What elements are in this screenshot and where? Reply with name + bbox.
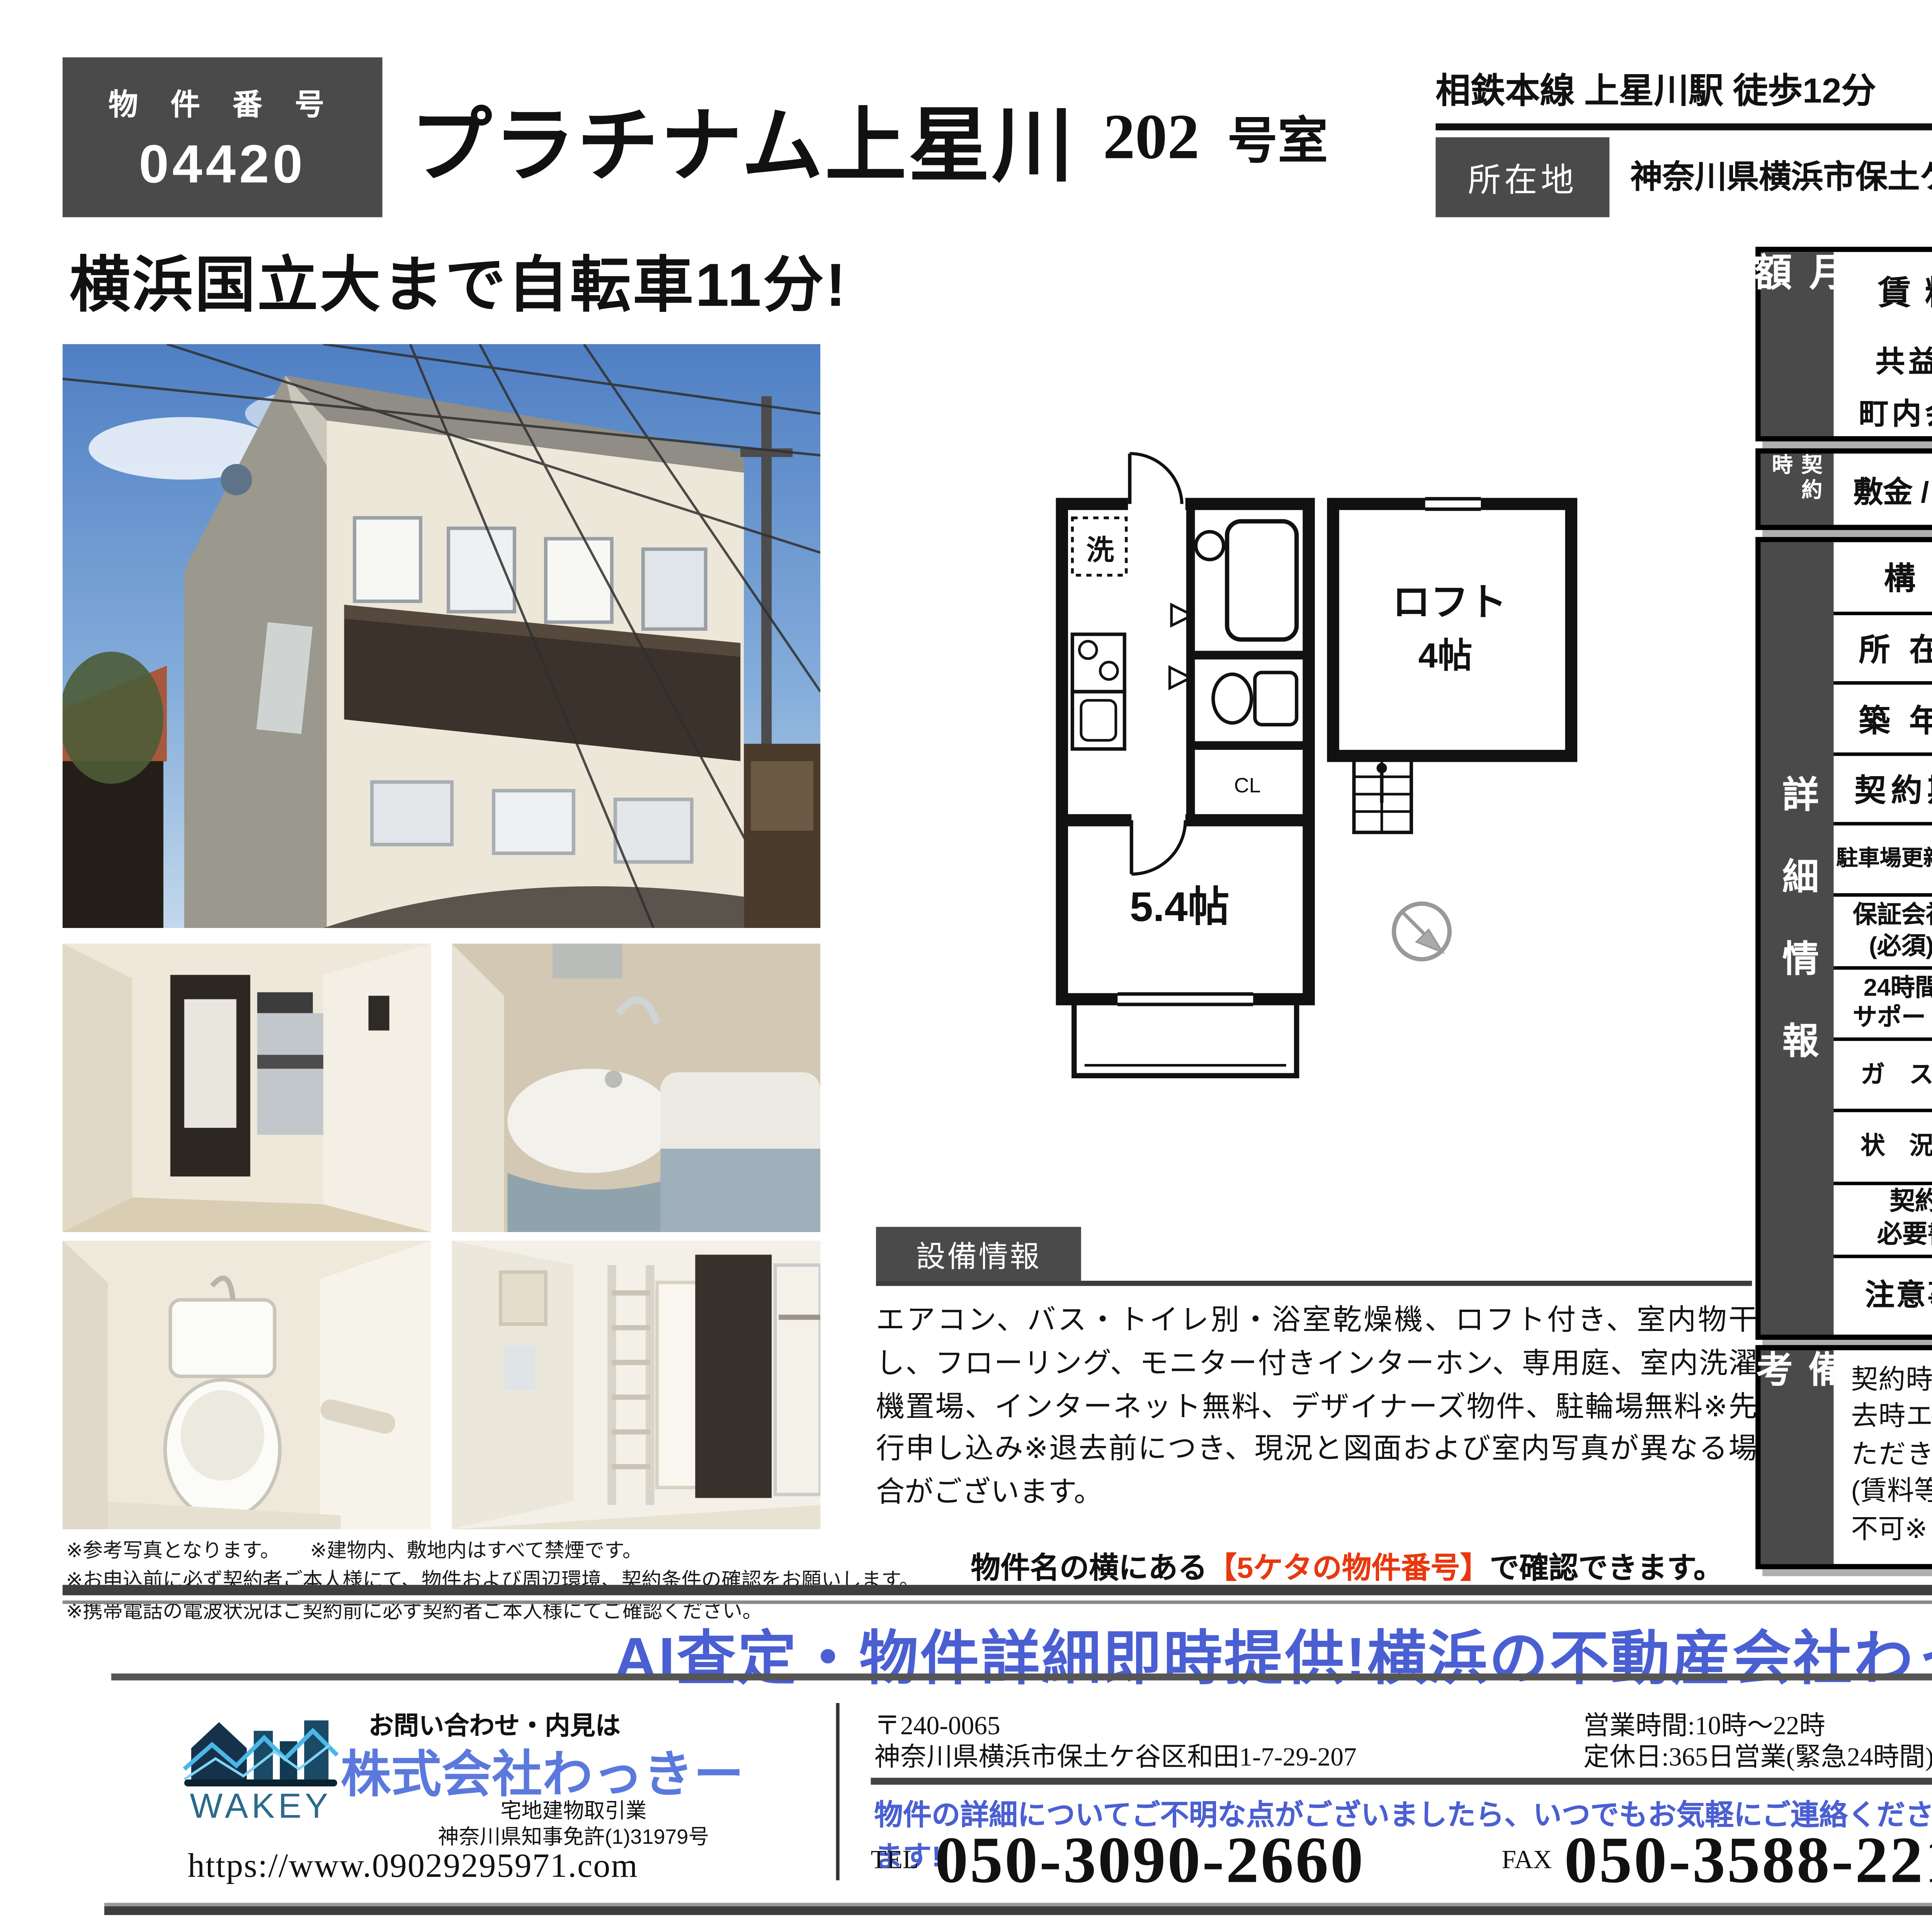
table-row: 所 在 階 2階/2階建て bbox=[1833, 612, 1932, 682]
business-type: 宅地建物取引業 bbox=[348, 1795, 800, 1825]
monthly-labels: 賃料 共益費 町内会費 bbox=[1833, 252, 1932, 436]
fax-label: FAX bbox=[1502, 1847, 1552, 1876]
company-url: https://www.09029295971.com bbox=[188, 1849, 638, 1887]
contract-sidebar: 契約時 bbox=[1761, 454, 1834, 525]
table-row: 契約時 必要書類 申込時:身分証明書(顔写真付き)写し 契約時:住民票 (本籍記… bbox=[1833, 1182, 1932, 1255]
deposit-key-label: 敷金 / 礼金 bbox=[1833, 454, 1932, 525]
property-number: 04420 bbox=[139, 133, 306, 195]
office-address: 神奈川県横浜市保土ケ谷区和田1-7-29-207 bbox=[874, 1738, 1357, 1774]
table-row: 保証会社 (必須) 賃料等の50%〜 住宅保険 (必須) 18,000円 / 2… bbox=[1833, 894, 1932, 965]
monthly-cost-table: 月額 賃料 共益費 町内会費 49,000円 3,000円 300円 bbox=[1755, 247, 1932, 442]
license-number: 神奈川県知事免許(1)31979号 bbox=[348, 1821, 800, 1851]
remarks-table: 備考 契約時に退去時ハウスクリーニング費用33,000円(税込)、退去時エアコン… bbox=[1755, 1345, 1932, 1569]
floorplan-loft-size: 4帖 bbox=[1418, 636, 1472, 675]
room-loft-ladder-photo bbox=[452, 1241, 821, 1530]
table-row: 構 造 木造 bbox=[1833, 542, 1932, 612]
detail-sidebar: 詳細情報 bbox=[1761, 542, 1834, 1334]
property-title-block: プラチナム上星川 202 号室 bbox=[410, 57, 1328, 217]
floorplan-laundry-label: 洗 bbox=[1086, 535, 1114, 566]
floor-plan: 洗 CL 5.4帖 ロフト 4帖 bbox=[1039, 445, 1599, 1112]
common-fee-label: 共益費 bbox=[1833, 330, 1932, 386]
town-fee-label: 町内会費 bbox=[1833, 386, 1932, 436]
tel-number: 050-3090-2660 bbox=[935, 1823, 1365, 1900]
note-suffix: で確認できます。 bbox=[1490, 1552, 1723, 1585]
room-loft-ladder-art bbox=[452, 1241, 821, 1530]
table-row: 駐車場更新料 新賃料1ヶ月 解約予告 1ヶ月前まで bbox=[1833, 822, 1932, 894]
divider-rule bbox=[63, 1601, 1932, 1604]
holiday-info: 定休日:365日営業(緊急24時間) bbox=[1583, 1738, 1932, 1774]
table-row: ガ ス プロパンガス 電 気 東京電力 bbox=[1833, 1037, 1932, 1109]
equipment-text: エアコン、バス・トイレ別・浴室乾燥機、ロフト付き、室内物干し、フローリング、モニ… bbox=[876, 1300, 1757, 1515]
equipment-section-label: 設備情報 bbox=[876, 1227, 1081, 1281]
bottom-border-bar bbox=[104, 1903, 1932, 1915]
exterior-photo-art bbox=[63, 344, 820, 928]
note-highlight: 【5ケタの物件番号】 bbox=[1207, 1552, 1490, 1585]
property-number-label: 物 件 番 号 bbox=[109, 79, 337, 122]
table-row: 状 況 2026年3月27日退去予定 入居可能日 相談 bbox=[1833, 1109, 1932, 1182]
location-label: 所在地 bbox=[1435, 137, 1609, 217]
photo-disclaimer-line: ※参考写真となります。 ※建物内、敷地内はすべて禁煙です。 bbox=[66, 1538, 919, 1568]
remarks-sidebar: 備考 bbox=[1761, 1350, 1834, 1564]
wakey-logo-text: WAKEY bbox=[167, 1788, 355, 1828]
divider-rule bbox=[111, 1674, 1932, 1681]
equipment-divider bbox=[876, 1281, 1752, 1286]
footer-horizontal-divider bbox=[871, 1778, 1932, 1785]
detail-info-table: 詳細情報 構 造 木造 所 在 階 2階/2階建て 築 年 月 2007/08 … bbox=[1755, 537, 1932, 1340]
exterior-photo bbox=[63, 344, 820, 928]
tel-label: TEL bbox=[871, 1847, 919, 1876]
property-number-note: 物件名の横にある【5ケタの物件番号】で確認できます。 bbox=[939, 1543, 1755, 1586]
bathroom-photo bbox=[452, 943, 821, 1232]
detail-grid: 構 造 木造 所 在 階 2階/2階建て 築 年 月 2007/08 築18年 … bbox=[1833, 542, 1932, 1334]
kitchen-hallway-art bbox=[63, 943, 431, 1232]
toilet-art bbox=[63, 1241, 431, 1530]
monthly-sidebar: 月額 bbox=[1761, 252, 1834, 436]
bathroom-art bbox=[452, 943, 821, 1232]
footer-vertical-divider bbox=[836, 1703, 840, 1880]
rent-label: 賃料 bbox=[1833, 252, 1932, 330]
company-banner: AI査定・物件詳細即時提供!横浜の不動産会社わっきー bbox=[0, 1611, 1932, 1696]
flyer-page: 物 件 番 号 04420 プラチナム上星川 202 号室 相鉄本線 上星川駅 … bbox=[0, 0, 1932, 1917]
station-access: 相鉄本線 上星川駅 徒歩12分 bbox=[1435, 63, 1876, 113]
floorplan-room-size: 5.4帖 bbox=[1130, 883, 1230, 930]
table-row: 24時間 サポート 16,500円 / 2年 鍵交換代 8,800 円 bbox=[1833, 965, 1932, 1037]
property-address: 神奈川県横浜市保土ケ谷区坂本町326-17 bbox=[1630, 137, 1932, 217]
station-underline bbox=[1435, 123, 1932, 130]
contract-cost-table: 契約時 敷金 / 礼金 0円 / 0円 bbox=[1755, 449, 1932, 530]
kitchen-hallway-photo bbox=[63, 943, 431, 1232]
room-number: 202 bbox=[1103, 100, 1199, 175]
divider-rule bbox=[63, 1585, 1932, 1595]
table-row: 契約期間 普通建物賃貸借契約 期間:2年 bbox=[1833, 752, 1932, 822]
floorplan-closet-label: CL bbox=[1234, 774, 1261, 797]
table-row: 注意事項 ※プロパンガスはご契約頂く際、別途保証金が掛かります。 ※ご入居後周辺… bbox=[1833, 1255, 1932, 1335]
catchphrase: 横浜国立大まで自転車11分! bbox=[70, 236, 848, 325]
table-row: 築 年 月 2007/08 築18年 bbox=[1833, 682, 1932, 752]
property-number-box: 物 件 番 号 04420 bbox=[63, 57, 383, 217]
floorplan-loft-label: ロフト bbox=[1392, 580, 1507, 623]
room-suffix: 号室 bbox=[1227, 101, 1328, 174]
floor-plan-drawing: 洗 CL 5.4帖 ロフト 4帖 bbox=[1039, 445, 1599, 1112]
note-prefix: 物件名の横にある bbox=[971, 1552, 1207, 1585]
property-title: プラチナム上星川 bbox=[410, 77, 1075, 197]
wakey-logo-icon bbox=[177, 1713, 344, 1786]
toilet-photo bbox=[63, 1241, 431, 1530]
fax-number: 050-3588-2213 bbox=[1564, 1823, 1932, 1900]
remarks-text: 契約時に退去時ハウスクリーニング費用33,000円(税込)、退去時エアコンクリー… bbox=[1833, 1350, 1932, 1564]
